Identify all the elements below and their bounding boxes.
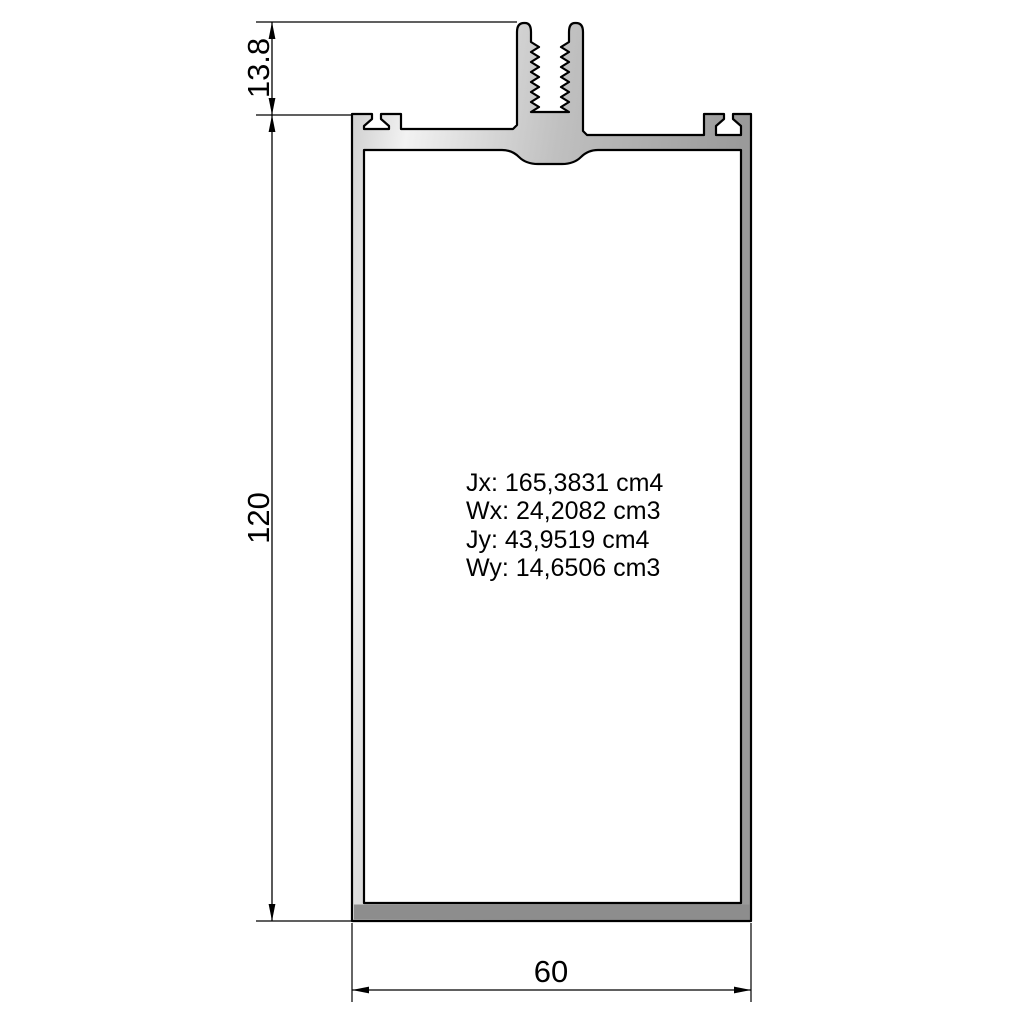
section-property-wy: Wy: 14,6506 cm3 bbox=[466, 554, 660, 582]
section-property-jx: Jx: 165,3831 cm4 bbox=[466, 469, 663, 497]
dimension-label-top-offset: 13.8 bbox=[241, 38, 276, 98]
section-property-jy: Jy: 43,9519 cm4 bbox=[466, 526, 650, 554]
dimension-label-height: 120 bbox=[241, 492, 276, 544]
dimension-label-width: 60 bbox=[534, 954, 568, 989]
drawing-canvas: 13.8 120 60 Jx: 165,3831 cm4 Wx: 24,2082… bbox=[0, 0, 1024, 1024]
section-property-wx: Wx: 24,2082 cm3 bbox=[466, 497, 661, 525]
section-properties: Jx: 165,3831 cm4 Wx: 24,2082 cm3 Jy: 43,… bbox=[466, 469, 663, 582]
profile-bottom-flange bbox=[354, 905, 750, 920]
technical-drawing: 13.8 120 60 Jx: 165,3831 cm4 Wx: 24,2082… bbox=[0, 0, 1024, 1024]
